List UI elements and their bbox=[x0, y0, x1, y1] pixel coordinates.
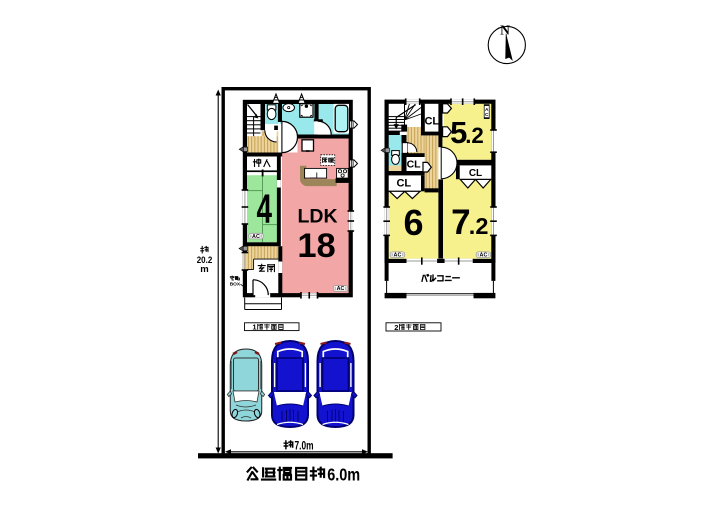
svg-text:m: m bbox=[200, 264, 208, 275]
svg-text:A: A bbox=[485, 107, 489, 113]
svg-text:7: 7 bbox=[451, 203, 470, 242]
svg-text:N: N bbox=[500, 23, 510, 38]
svg-text:AC: AC bbox=[394, 252, 402, 258]
svg-text:CL: CL bbox=[469, 168, 482, 179]
svg-text:2: 2 bbox=[394, 323, 398, 332]
svg-text:6.0m: 6.0m bbox=[327, 464, 360, 484]
svg-text:AC: AC bbox=[337, 286, 345, 292]
svg-text:.2: .2 bbox=[469, 213, 489, 239]
svg-text:BOX: BOX bbox=[230, 281, 241, 287]
svg-text:AC: AC bbox=[252, 234, 260, 240]
svg-text:C: C bbox=[485, 112, 489, 118]
svg-text:AC: AC bbox=[480, 252, 488, 258]
svg-text:4: 4 bbox=[256, 185, 272, 231]
svg-text:7.0m: 7.0m bbox=[295, 439, 314, 453]
svg-text:LDK: LDK bbox=[297, 206, 337, 228]
svg-text:CL: CL bbox=[396, 178, 411, 190]
svg-text:1: 1 bbox=[252, 323, 256, 332]
svg-text:CL: CL bbox=[407, 159, 422, 171]
svg-text:.2: .2 bbox=[465, 123, 484, 148]
svg-text:CL: CL bbox=[424, 115, 439, 127]
svg-text:18: 18 bbox=[297, 227, 335, 265]
svg-text:6: 6 bbox=[403, 202, 423, 243]
